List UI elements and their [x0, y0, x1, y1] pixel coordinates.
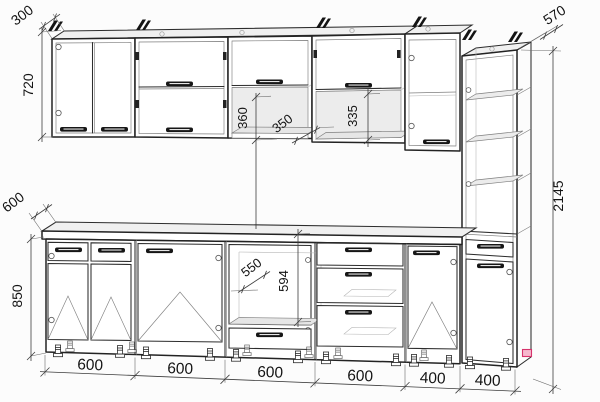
wall-cabinets-group	[52, 25, 472, 151]
dim-label-upper-niche: 335	[345, 105, 360, 127]
base-cabinet-2	[138, 244, 222, 343]
mount-bracket-icon	[316, 18, 331, 29]
mount-bracket-icon	[136, 20, 151, 31]
dim-label-width-2: 600	[167, 360, 194, 378]
wall-cabinet-5	[405, 33, 460, 151]
kitchen-technical-drawing: 300 720 600 850	[0, 0, 600, 402]
drawer-handle	[345, 248, 372, 253]
wall-cabinet-4	[312, 34, 411, 143]
hinge-icon	[136, 100, 140, 108]
dim-label-upper-open: 360	[235, 107, 250, 129]
drawer-handle	[98, 248, 125, 253]
door-handle	[423, 140, 450, 145]
dim-label-total-height: 2145	[550, 180, 566, 211]
mount-bracket-icon	[508, 32, 523, 43]
hinge-icon	[223, 100, 227, 108]
door-handle	[345, 83, 372, 88]
door-handle	[477, 264, 504, 269]
hinge-icon	[397, 50, 401, 58]
door-handle	[60, 127, 87, 132]
door-handle	[101, 127, 128, 132]
drawer-handle	[345, 272, 372, 277]
wall-cabinet-1	[52, 38, 135, 137]
dim-label-width-3: 600	[257, 364, 284, 382]
dimension-tall-depth: 570	[519, 2, 569, 49]
dim-label-oven-height: 594	[276, 270, 291, 292]
hinge-icon	[136, 52, 140, 60]
red-marker	[523, 350, 532, 357]
drawer-handle	[256, 333, 283, 338]
dimension-counter-depth: 600	[0, 188, 56, 231]
dim-label-width-5: 400	[419, 370, 446, 388]
drawing-canvas: 300 720 600 850	[0, 0, 600, 402]
drawer-handle	[345, 310, 372, 315]
dim-label-wall-height: 720	[20, 73, 36, 97]
hinge-icon	[223, 52, 227, 60]
door-handle	[166, 128, 193, 133]
hinge-icon	[314, 50, 318, 58]
drawer-handle	[477, 244, 504, 249]
dimension-total-height: 2145	[521, 46, 566, 394]
door-handle	[146, 249, 173, 254]
base-cabinet-5	[408, 246, 457, 349]
tall-cabinet	[462, 42, 531, 367]
dim-label-tall-depth: 570	[540, 2, 568, 28]
door-handle	[256, 80, 283, 85]
dim-label-wall-depth: 300	[8, 1, 36, 28]
dimension-wall-depth: 300	[8, 1, 64, 38]
drawer-handle	[55, 248, 82, 253]
base-cabinet-drawers	[317, 243, 403, 347]
door-handle	[166, 82, 193, 87]
dimension-base-height: 850	[9, 234, 46, 361]
wall-cabinet-2	[135, 37, 228, 138]
dim-label-base-height: 850	[9, 284, 25, 308]
mount-bracket-icon	[462, 30, 477, 41]
dim-label-width-1: 600	[77, 356, 104, 374]
door-handle	[413, 251, 440, 256]
dim-label-width-4: 600	[347, 367, 374, 385]
dim-label-counter-depth: 600	[0, 188, 27, 215]
dim-label-width-6: 400	[474, 372, 501, 390]
